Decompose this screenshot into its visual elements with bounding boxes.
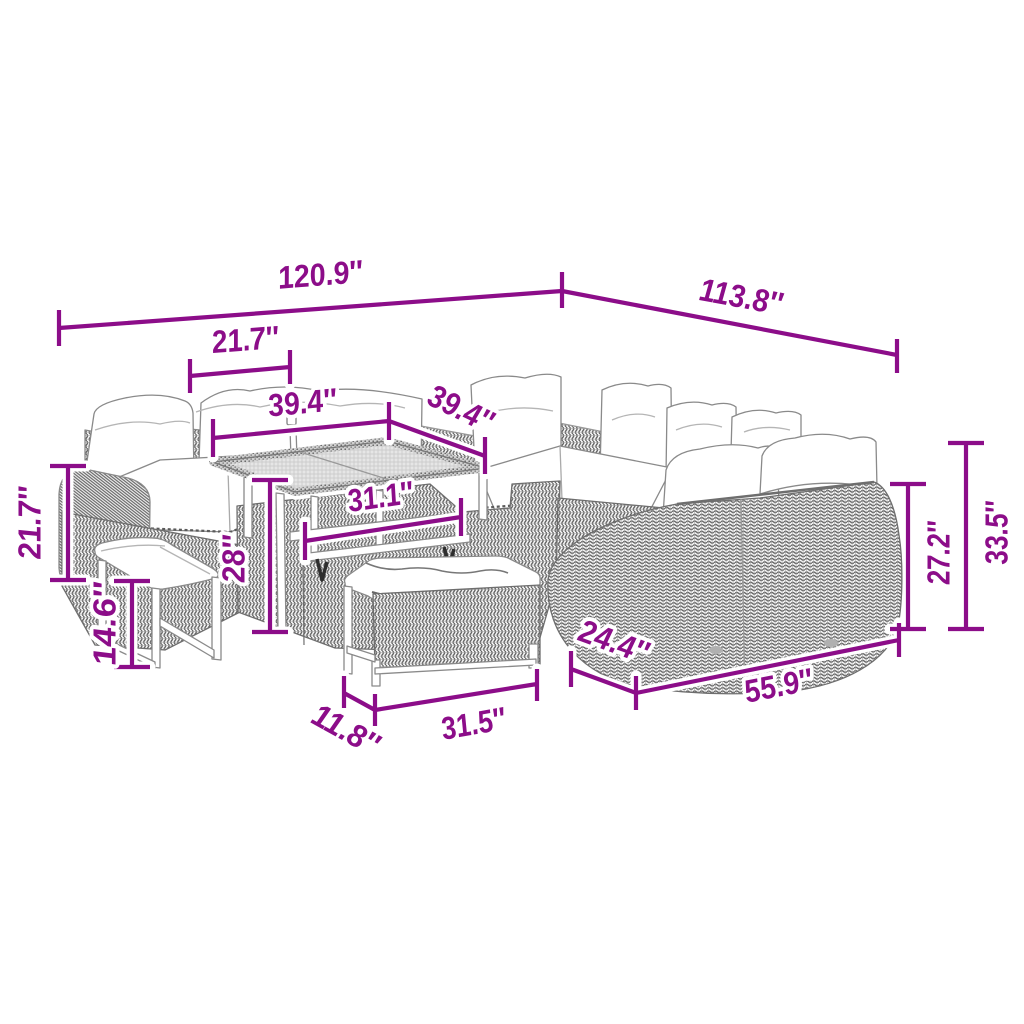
svg-text:27.2″: 27.2″ [921, 518, 957, 587]
svg-text:14.6″: 14.6″ [87, 579, 123, 668]
svg-text:28″: 28″ [216, 532, 252, 586]
svg-text:21.7″: 21.7″ [12, 483, 48, 562]
svg-text:21.7″: 21.7″ [208, 319, 283, 360]
svg-text:33.5″: 33.5″ [979, 498, 1015, 566]
svg-text:120.9″: 120.9″ [275, 253, 367, 295]
svg-text:39.4″: 39.4″ [264, 381, 341, 423]
